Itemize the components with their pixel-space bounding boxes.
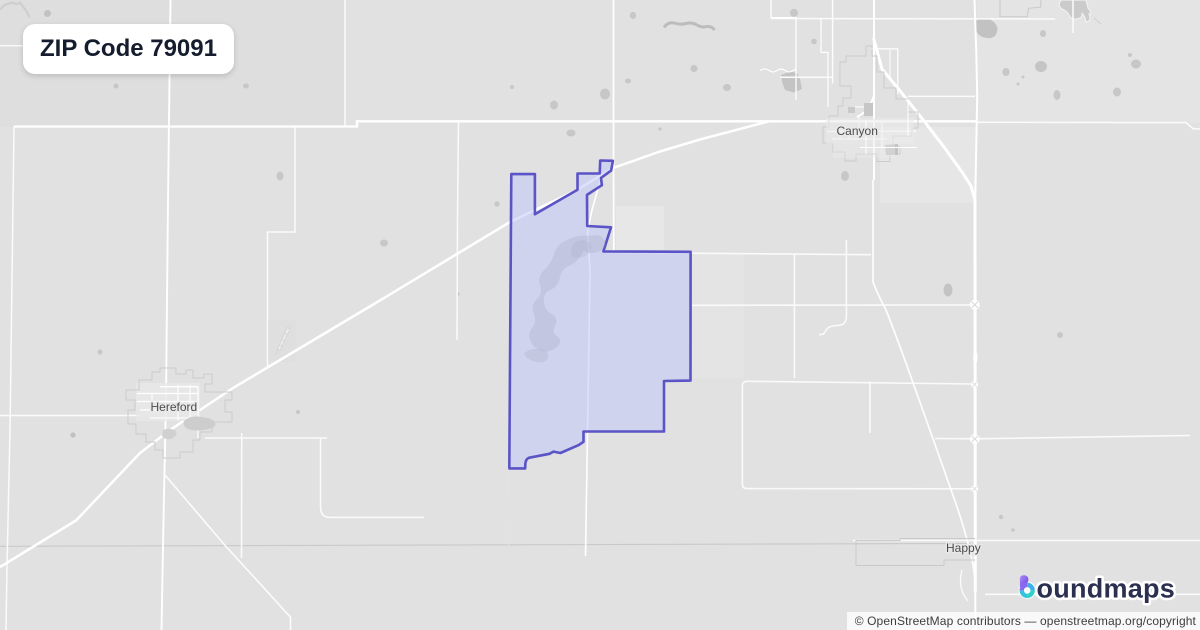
svg-text:oundmaps: oundmaps <box>1037 574 1176 604</box>
svg-text:Happy: Happy <box>946 541 981 555</box>
svg-text:Hereford: Hereford <box>151 400 198 414</box>
svg-text:Canyon: Canyon <box>837 124 878 138</box>
